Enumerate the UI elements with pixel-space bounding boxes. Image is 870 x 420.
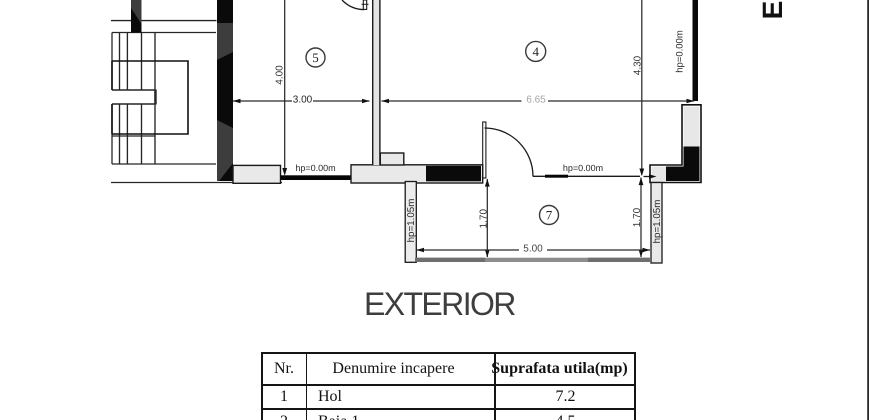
svg-text:hp=0.00m: hp=0.00m [295,163,335,173]
svg-text:4.00: 4.00 [275,65,286,85]
svg-text:3.00: 3.00 [293,94,313,105]
svg-text:4.30: 4.30 [633,55,644,75]
svg-text:hp=1.05m: hp=1.05m [406,199,417,243]
svg-text:1.70: 1.70 [632,207,643,227]
svg-text:6.65: 6.65 [526,94,546,105]
svg-text:4: 4 [532,44,539,59]
svg-text:5.00: 5.00 [523,244,543,255]
svg-text:7: 7 [546,208,553,223]
svg-text:E: E [757,1,788,20]
svg-text:hp=0.00m: hp=0.00m [675,30,686,73]
svg-text:1.70: 1.70 [478,209,489,229]
svg-text:hp=1.05m: hp=1.05m [652,200,663,244]
svg-text:5: 5 [312,50,319,65]
svg-text:hp=0.00m: hp=0.00m [563,163,603,173]
